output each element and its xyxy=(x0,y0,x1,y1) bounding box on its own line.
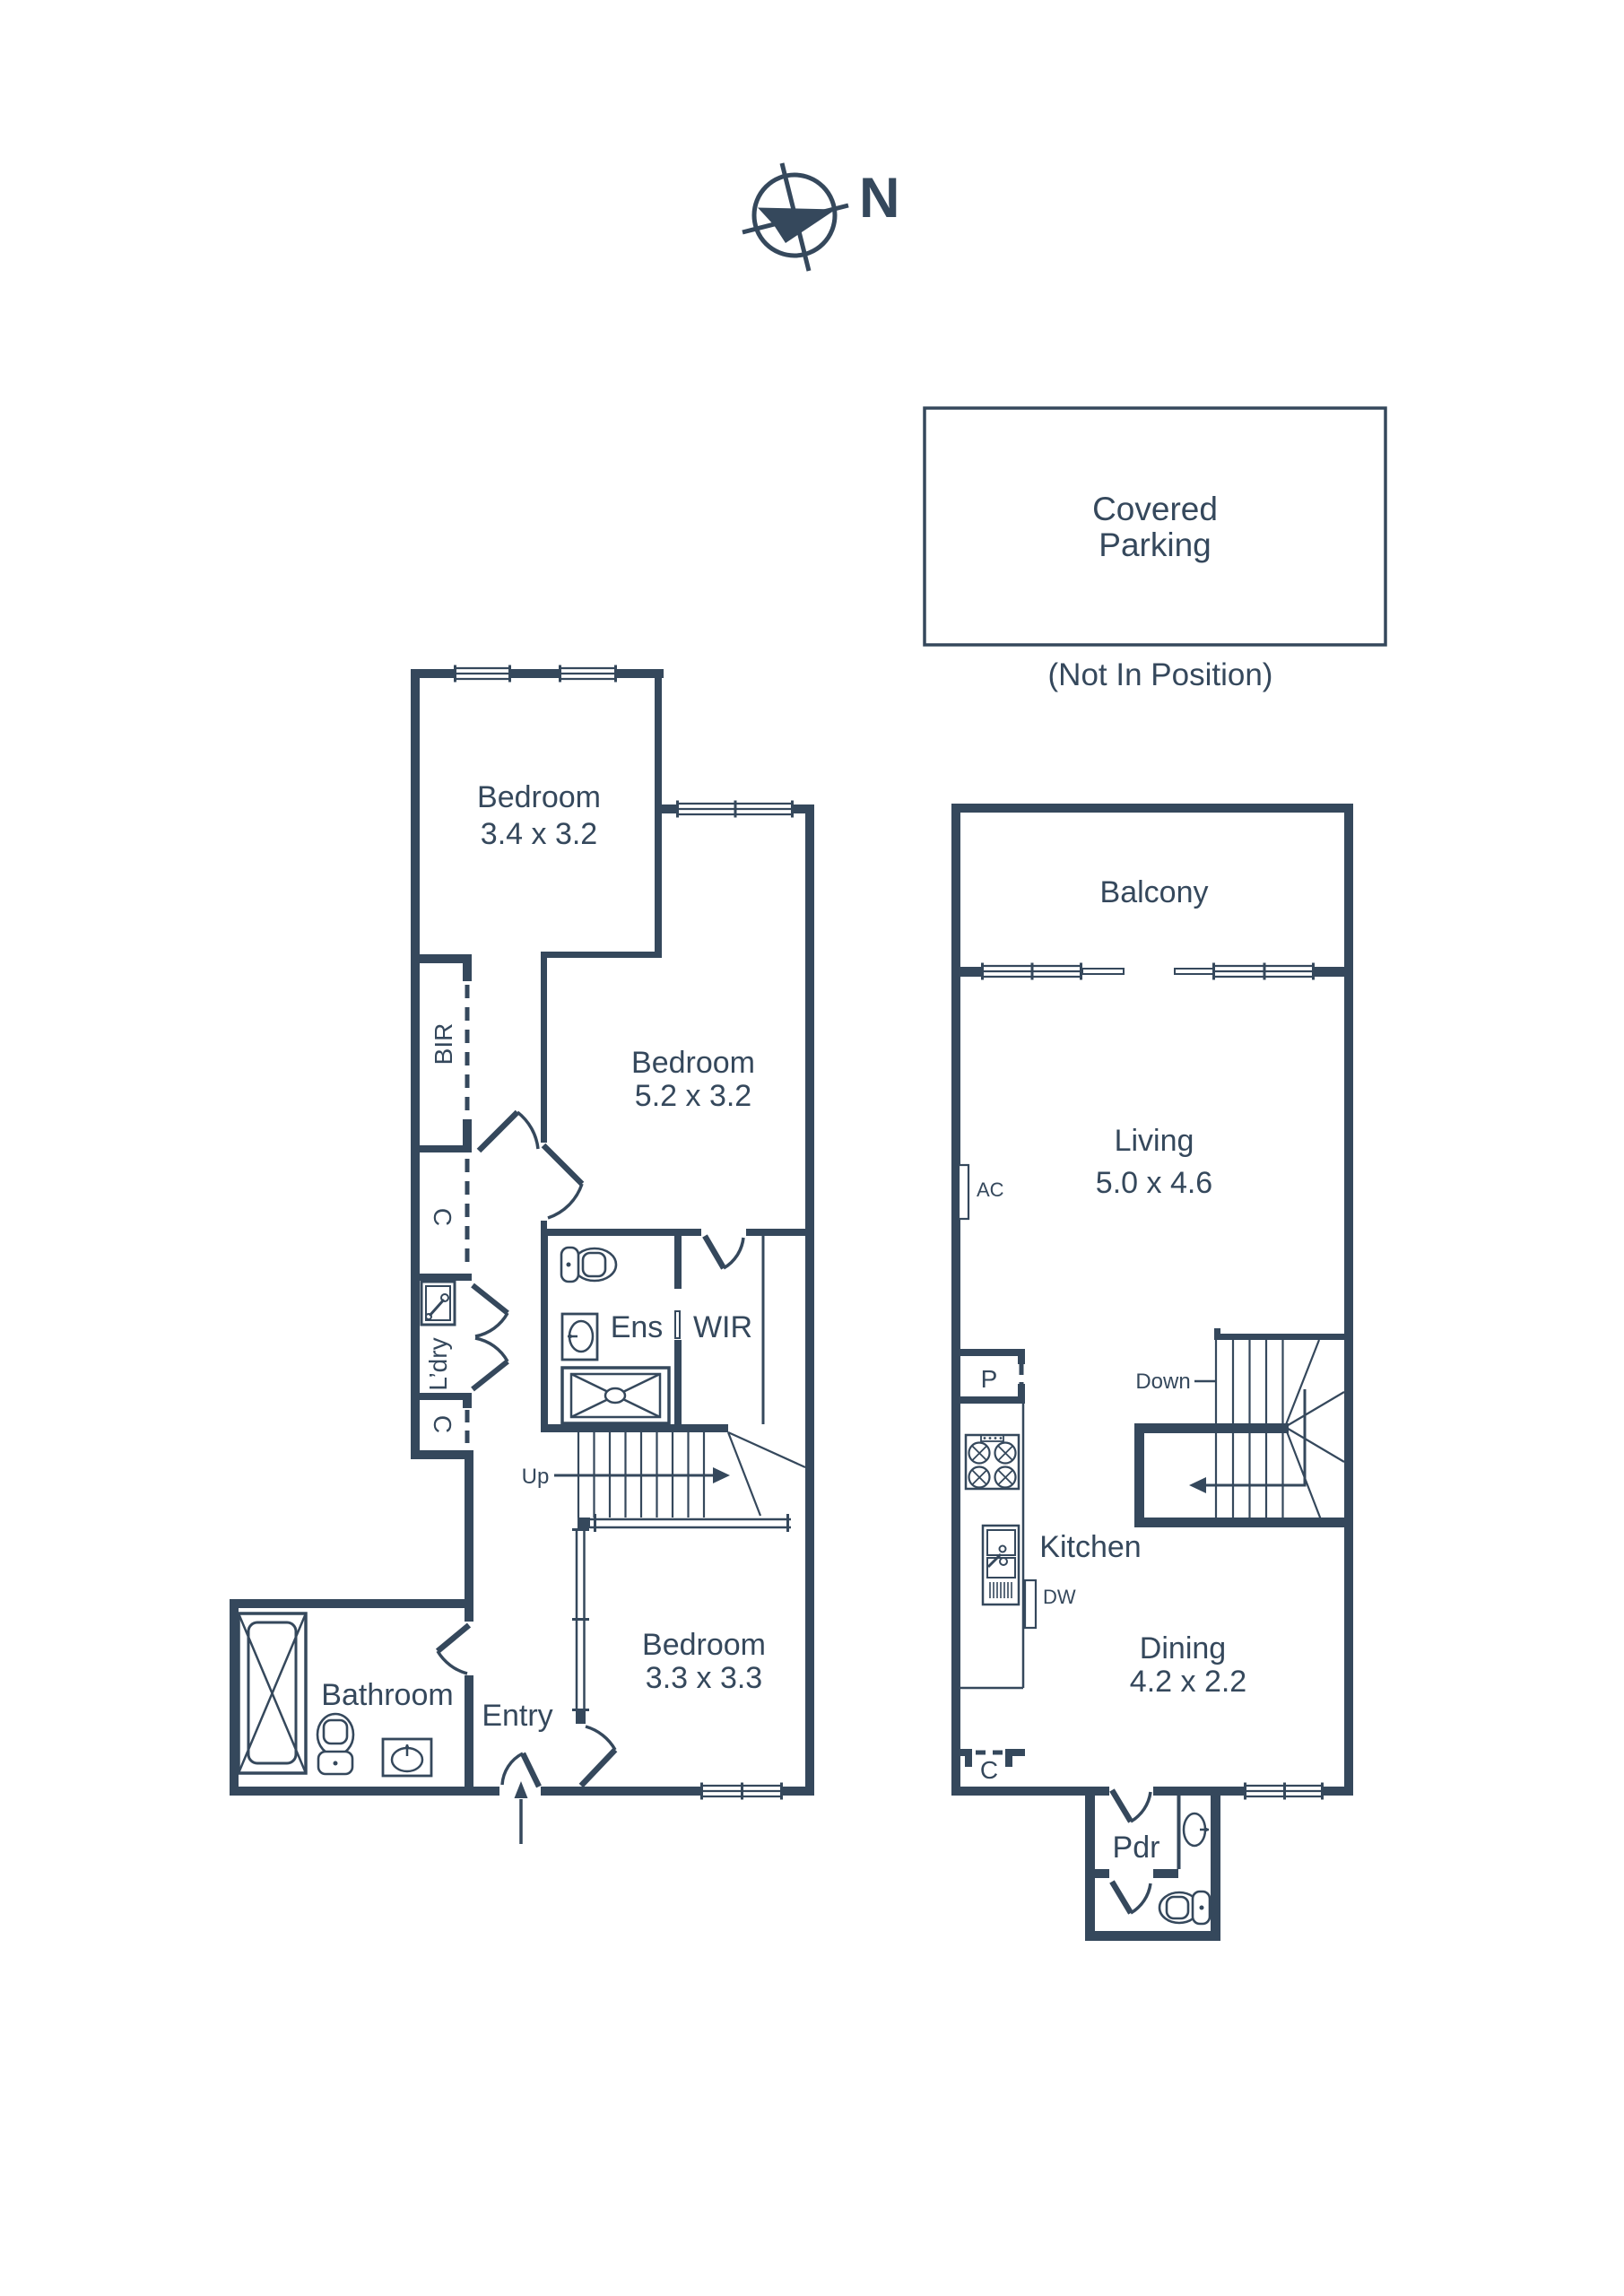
svg-text:(Not In Position): (Not In Position) xyxy=(1048,657,1273,692)
svg-text:Parking: Parking xyxy=(1099,526,1211,563)
svg-text:Down: Down xyxy=(1135,1370,1190,1394)
svg-text:Covered: Covered xyxy=(1092,491,1218,527)
svg-text:Kitchen: Kitchen xyxy=(1039,1530,1141,1564)
svg-text:Dining: Dining xyxy=(1140,1631,1226,1665)
svg-text:Bedroom: Bedroom xyxy=(477,780,601,814)
svg-text:5.0 x 4.6: 5.0 x 4.6 xyxy=(1096,1166,1212,1200)
svg-text:BIR: BIR xyxy=(430,1023,457,1065)
svg-text:Ens: Ens xyxy=(611,1310,664,1344)
svg-text:Entry: Entry xyxy=(482,1699,552,1733)
svg-text:Living: Living xyxy=(1115,1124,1194,1158)
svg-text:Balcony: Balcony xyxy=(1100,875,1209,909)
svg-text:N: N xyxy=(859,167,900,230)
svg-text:3.3 x 3.3: 3.3 x 3.3 xyxy=(646,1661,762,1695)
svg-text:3.4 x 3.2: 3.4 x 3.2 xyxy=(481,817,597,851)
svg-text:L’dry: L’dry xyxy=(424,1337,452,1390)
svg-text:C: C xyxy=(429,1415,456,1433)
svg-text:C: C xyxy=(980,1756,998,1784)
svg-text:5.2 x 3.2: 5.2 x 3.2 xyxy=(635,1079,751,1113)
svg-text:Bedroom: Bedroom xyxy=(642,1628,766,1662)
svg-text:C: C xyxy=(429,1208,456,1226)
svg-text:Pdr: Pdr xyxy=(1113,1831,1160,1865)
svg-text:4.2 x 2.2: 4.2 x 2.2 xyxy=(1130,1665,1246,1699)
svg-text:AC: AC xyxy=(977,1178,1004,1201)
svg-text:DW: DW xyxy=(1043,1586,1076,1608)
svg-text:WIR: WIR xyxy=(693,1310,752,1344)
svg-text:Bathroom: Bathroom xyxy=(321,1678,453,1712)
svg-text:Up: Up xyxy=(522,1465,550,1489)
svg-text:P: P xyxy=(981,1365,998,1393)
svg-text:Bedroom: Bedroom xyxy=(631,1046,755,1080)
